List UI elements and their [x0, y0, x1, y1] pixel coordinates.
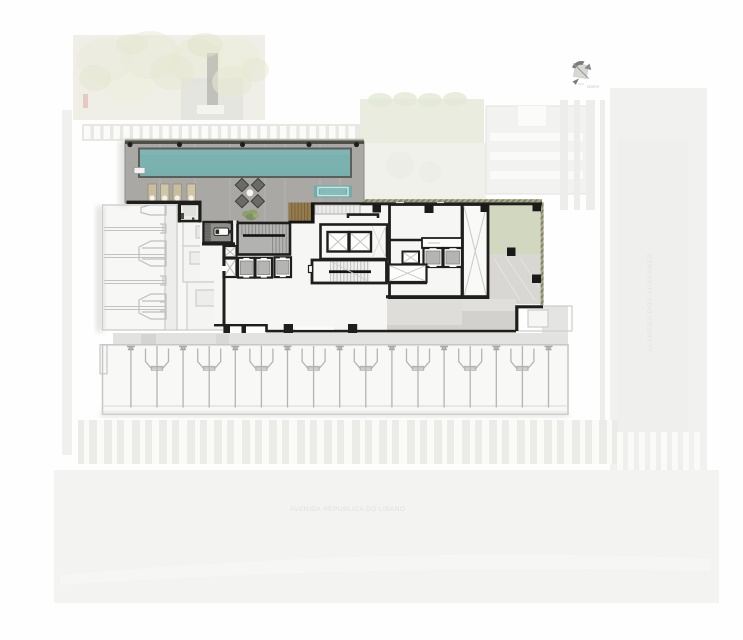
svg-text:AVENIDA REPUBLICA DO LIBANO: AVENIDA REPUBLICA DO LIBANO [290, 506, 405, 513]
svg-text:NORTE: NORTE [587, 85, 600, 89]
svg-text:ALAMEDA DOS ARAPANES: ALAMEDA DOS ARAPANES [647, 253, 654, 352]
